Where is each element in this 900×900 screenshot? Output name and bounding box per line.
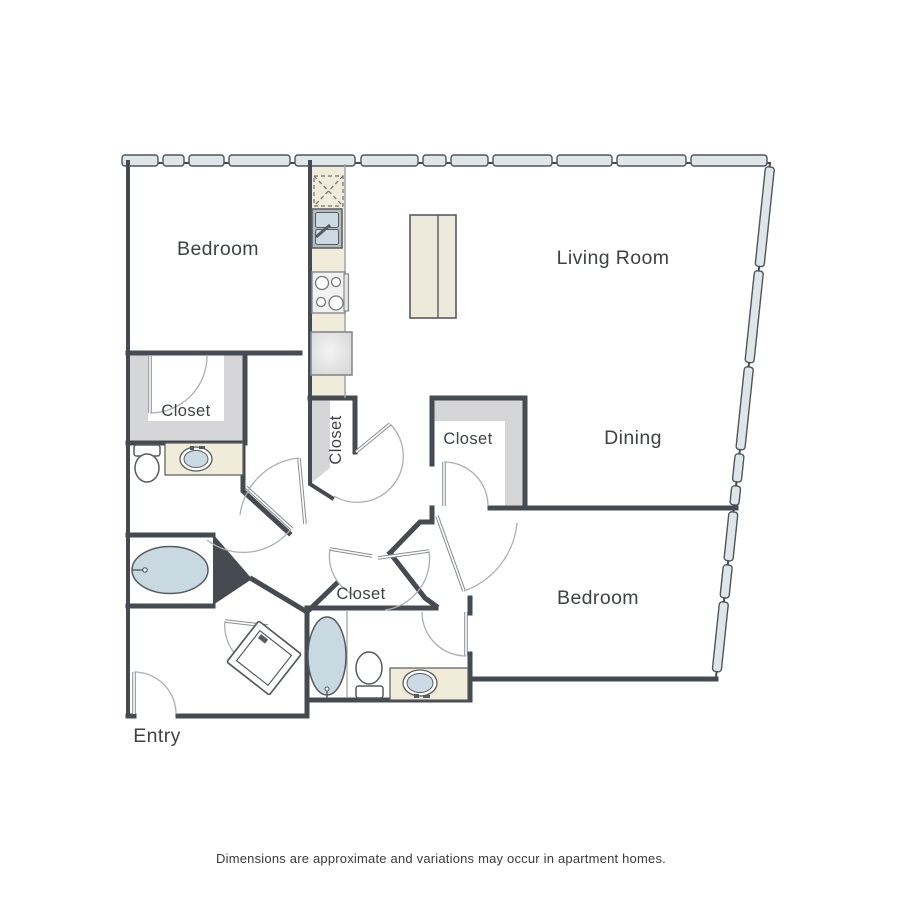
window-segment [691, 155, 767, 166]
label-dining: Dining [604, 427, 662, 449]
window-segment [712, 602, 728, 673]
window-segment [493, 155, 552, 166]
window-segment [229, 155, 290, 166]
window-segment [189, 155, 224, 166]
footer-disclaimer: Dimensions are approximate and variation… [216, 851, 666, 866]
bathtub [132, 547, 208, 594]
toilet [134, 445, 160, 482]
window-segment [755, 167, 774, 267]
door-bath-2 [422, 612, 466, 656]
label-closet-bath: Closet [336, 585, 385, 603]
floor-plan: Bedroom Living Room Dining Bedroom Entry… [0, 0, 900, 900]
floor-plan-page: Bedroom Living Room Dining Bedroom Entry… [0, 0, 900, 900]
window-segment [295, 155, 355, 166]
kitchen-double-sink [312, 209, 342, 248]
vanity-sink-2 [390, 668, 468, 700]
label-closet-hall: Closet [327, 415, 345, 464]
kitchen-island [410, 215, 456, 318]
range-stove [312, 272, 349, 313]
window-segment [732, 454, 744, 483]
label-entry: Entry [133, 725, 181, 747]
window-segment [361, 155, 418, 166]
label-closet-dining: Closet [443, 430, 492, 448]
bathroom-2 [308, 610, 468, 700]
door-bedroom-lower [437, 516, 517, 591]
window-segment [451, 155, 488, 166]
window-segment [423, 155, 446, 166]
label-living-room: Living Room [557, 247, 670, 269]
vanity-sink [165, 443, 243, 475]
label-closet-master: Closet [161, 402, 210, 420]
label-bedroom-lower: Bedroom [557, 587, 639, 609]
door-closet-dining [444, 462, 488, 506]
bathtub-2 [308, 617, 346, 698]
window-band-right [712, 163, 774, 677]
window-segment [736, 367, 754, 450]
window-segment [617, 155, 686, 166]
door-entry [134, 672, 176, 714]
window-segment [163, 155, 184, 166]
washer-dryer [227, 621, 302, 695]
window-segment [557, 155, 612, 166]
window-segment [745, 271, 764, 363]
closet-dining-fill-right [505, 398, 525, 508]
toilet-2 [356, 652, 383, 698]
window-band-top [122, 155, 770, 166]
window-segment [720, 565, 732, 599]
window-segment [724, 512, 738, 562]
label-bedroom-upper: Bedroom [177, 238, 259, 260]
refrigerator [311, 332, 352, 375]
wall-wedge [213, 534, 252, 605]
door-closet-bath-right [378, 551, 430, 610]
window-segment [730, 486, 741, 506]
